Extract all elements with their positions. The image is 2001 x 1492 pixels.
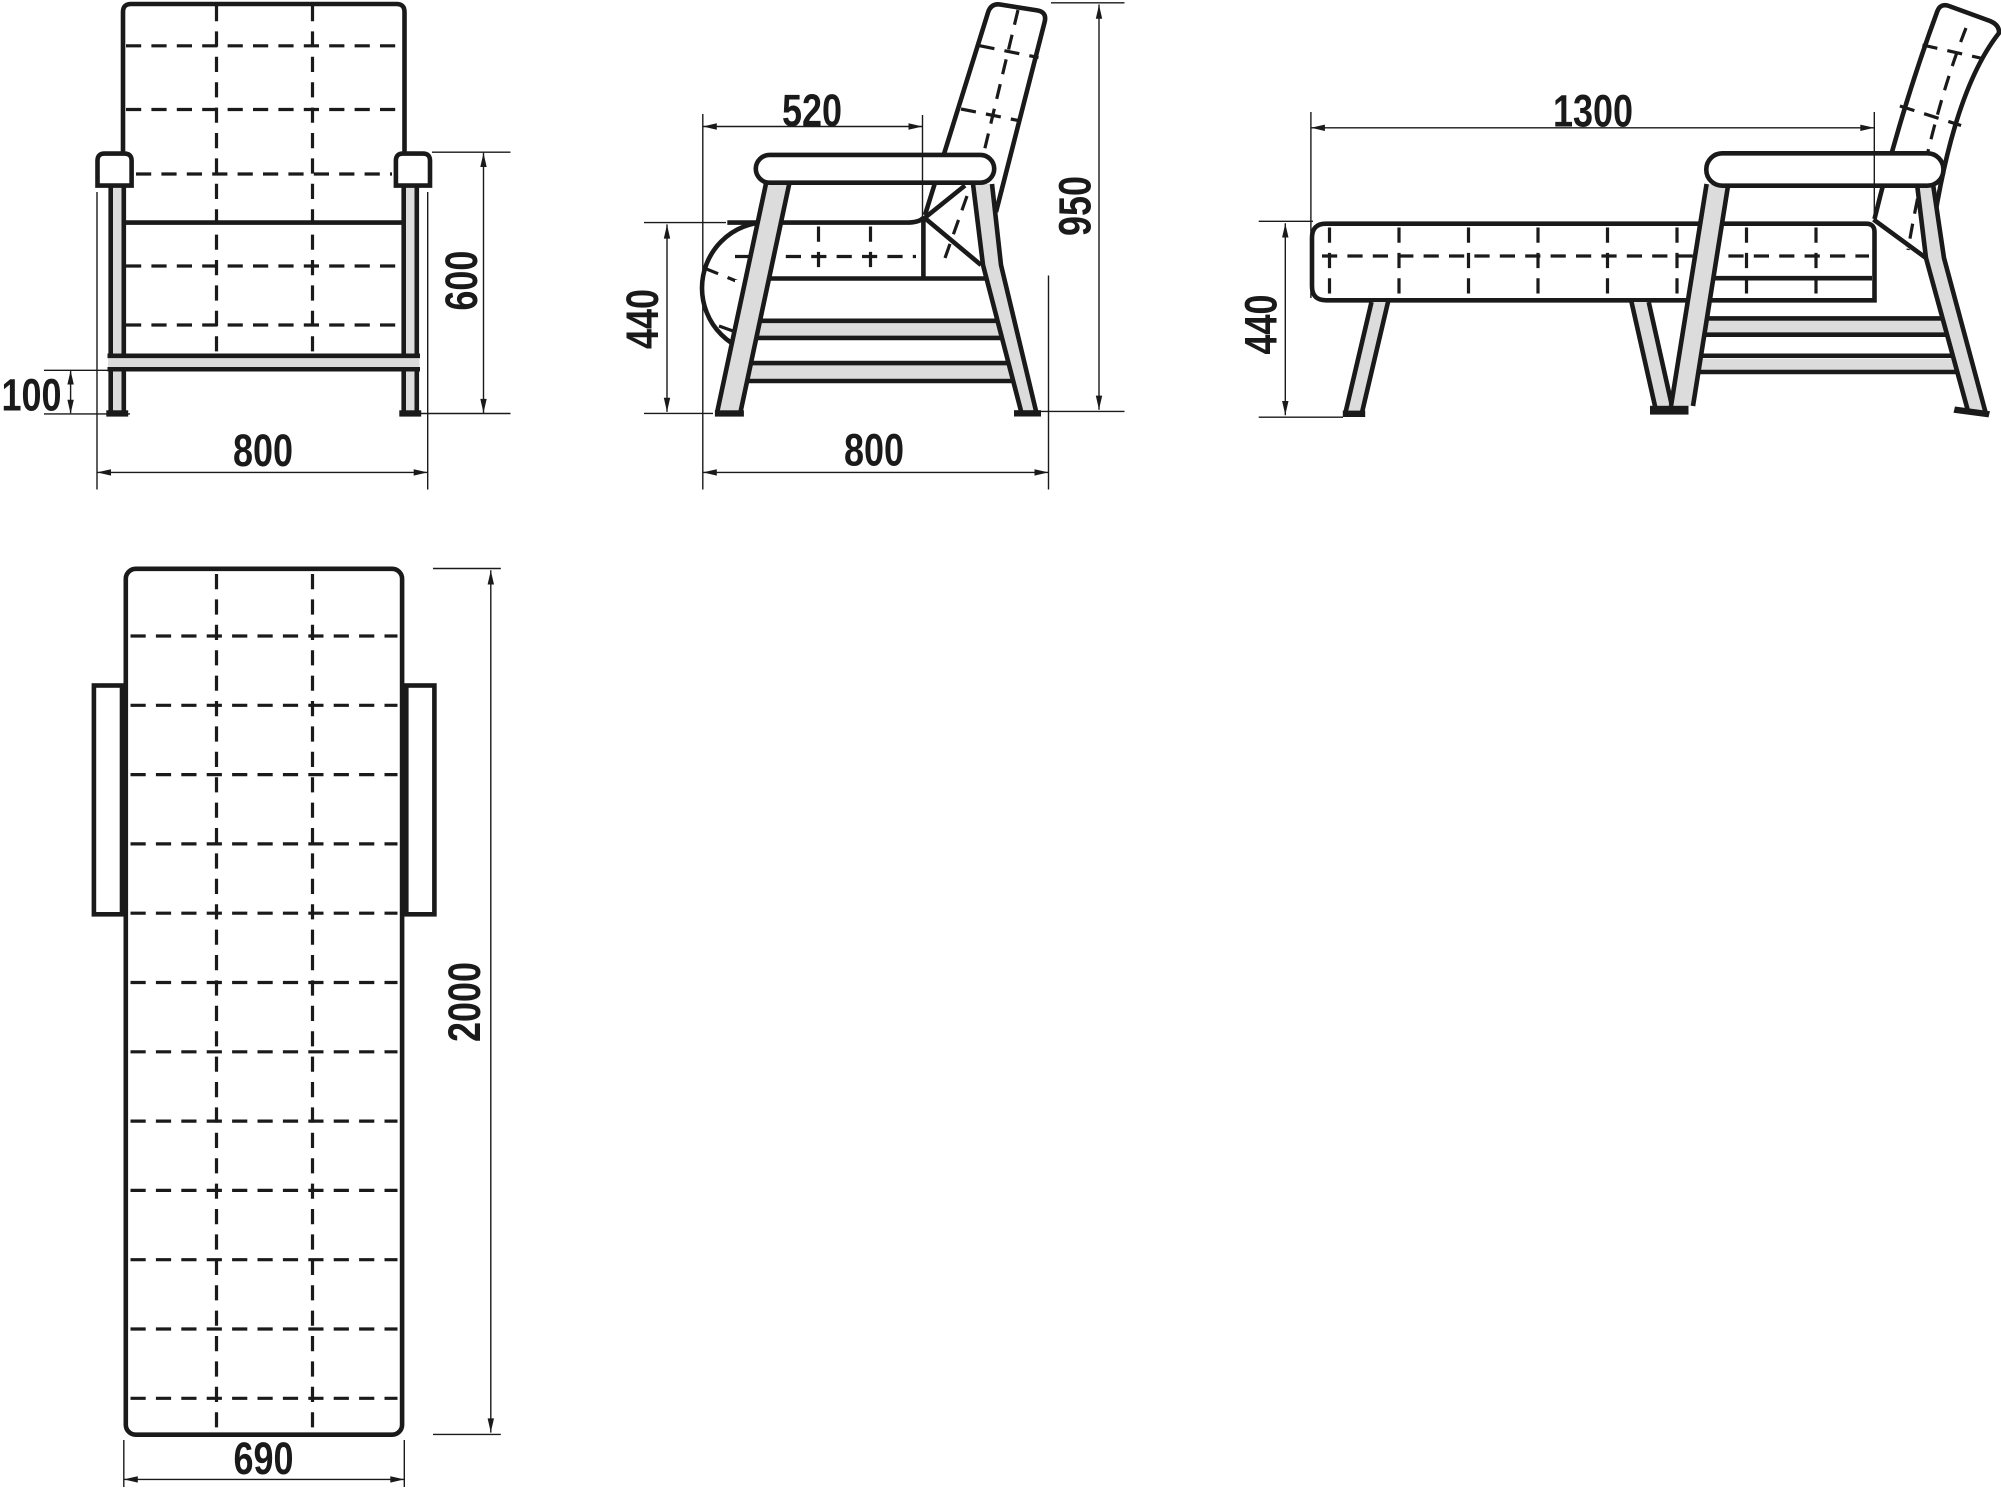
svg-text:600: 600 — [436, 251, 487, 311]
svg-text:800: 800 — [233, 425, 293, 476]
svg-text:100: 100 — [1, 370, 61, 421]
svg-text:440: 440 — [1236, 294, 1287, 354]
svg-text:690: 690 — [233, 1433, 293, 1484]
svg-text:520: 520 — [782, 85, 842, 136]
svg-text:950: 950 — [1050, 176, 1101, 236]
svg-text:1300: 1300 — [1553, 86, 1633, 137]
svg-text:800: 800 — [844, 425, 904, 476]
svg-text:2000: 2000 — [439, 962, 490, 1042]
svg-text:440: 440 — [617, 289, 668, 349]
